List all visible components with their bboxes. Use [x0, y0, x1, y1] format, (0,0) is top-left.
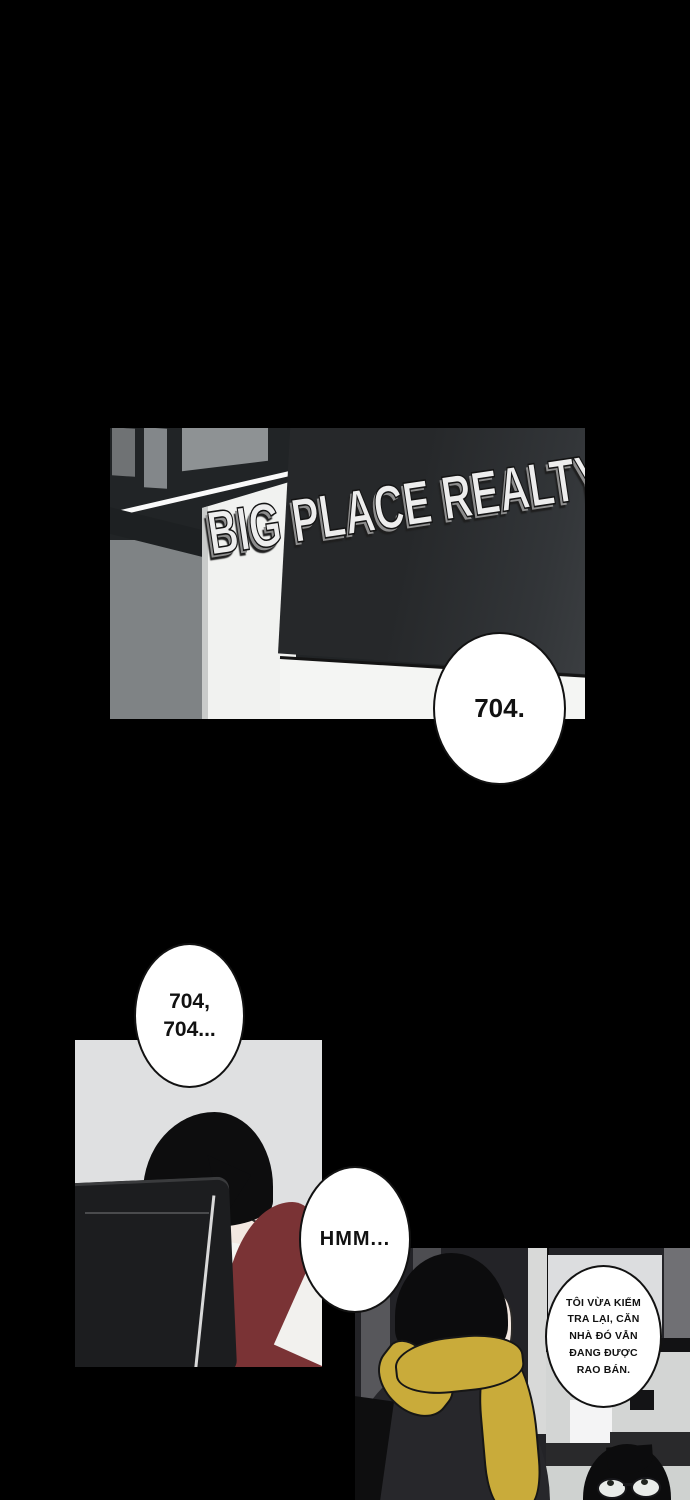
speech-text: HMM... — [301, 1228, 409, 1251]
comic-page: BIG PLACE REALTY — [0, 0, 690, 1500]
speech-bubble-counting: 704, 704... — [134, 943, 245, 1088]
storefront-glass — [110, 540, 204, 719]
speech-text-line: ĐANG ĐƯỢC — [547, 1345, 660, 1362]
speech-bubble-hmm: HMM... — [299, 1166, 411, 1313]
window-pane — [112, 428, 135, 477]
panel-office — [75, 1040, 322, 1367]
speech-text-line: RAO BÁN. — [547, 1362, 660, 1379]
wall-strip — [664, 1248, 690, 1340]
speech-text-line: TÔI VỪA KIỂM — [547, 1295, 660, 1312]
window-pane — [182, 428, 268, 471]
agent-eye — [607, 1480, 614, 1486]
speech-text-line: 704, — [136, 988, 243, 1015]
agent-glasses-bridge — [623, 1483, 633, 1486]
speech-bubble-agent: TÔI VỪA KIỂM TRA LẠI, CĂN NHÀ ĐÓ VẪN ĐAN… — [545, 1265, 662, 1408]
agent-eye — [641, 1479, 648, 1485]
speech-text-line: TRA LẠI, CĂN — [547, 1311, 660, 1328]
speech-text: 704. — [435, 693, 564, 724]
speech-bubble-704: 704. — [433, 632, 566, 785]
window-pane — [144, 428, 167, 489]
speech-text-line: 704... — [136, 1016, 243, 1043]
monitor-bezel-line — [85, 1212, 209, 1214]
speech-text-line: NHÀ ĐÓ VẪN — [547, 1328, 660, 1345]
